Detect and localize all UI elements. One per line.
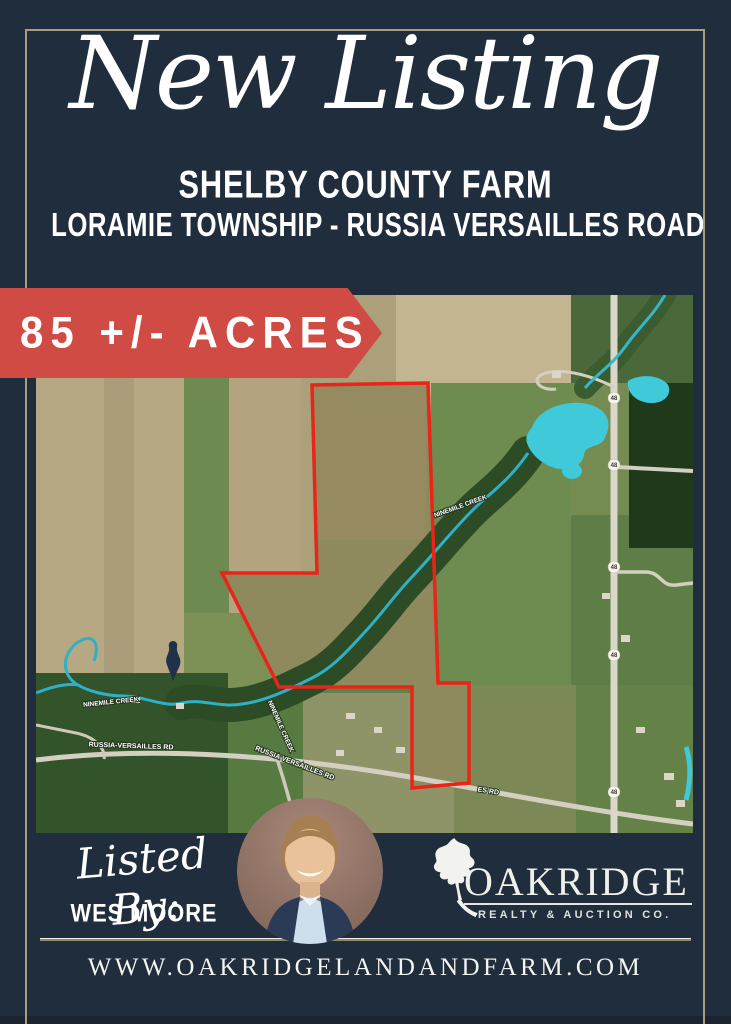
- logo-underline: [464, 903, 692, 905]
- footer-divider: [40, 938, 691, 941]
- route-marker-label: 48: [611, 396, 618, 402]
- route-marker-label: 48: [611, 565, 618, 571]
- route-marker-label: 48: [611, 463, 618, 469]
- brokerage-name: OAKRIDGE: [464, 858, 689, 905]
- website-url: WWW.OAKRIDGELANDANDFARM.COM: [0, 954, 731, 982]
- property-heading: SHELBY COUNTY FARM: [44, 163, 687, 208]
- acreage-banner-text: 85 +/- ACRES: [0, 308, 370, 358]
- brokerage-tagline: REALTY & AUCTION CO.: [478, 909, 671, 921]
- listing-poster: New Listing SHELBY COUNTY FARM LORAMIE T…: [0, 0, 731, 1024]
- agent-photo: [237, 798, 383, 944]
- bottom-edge-strip: [0, 1016, 731, 1024]
- acreage-banner: 85 +/- ACRES: [0, 288, 382, 378]
- poster-title: New Listing: [0, 14, 731, 134]
- brokerage-logo: OAKRIDGE REALTY & AUCTION CO.: [424, 836, 704, 931]
- agent-photo-graphic: [237, 798, 383, 944]
- route-marker-label: 48: [611, 653, 618, 659]
- property-subheading: LORAMIE TOWNSHIP - RUSSIA VERSAILLES ROA…: [51, 207, 680, 245]
- route-marker-label: 48: [611, 790, 618, 796]
- agent-name: WES MOORE: [49, 899, 239, 928]
